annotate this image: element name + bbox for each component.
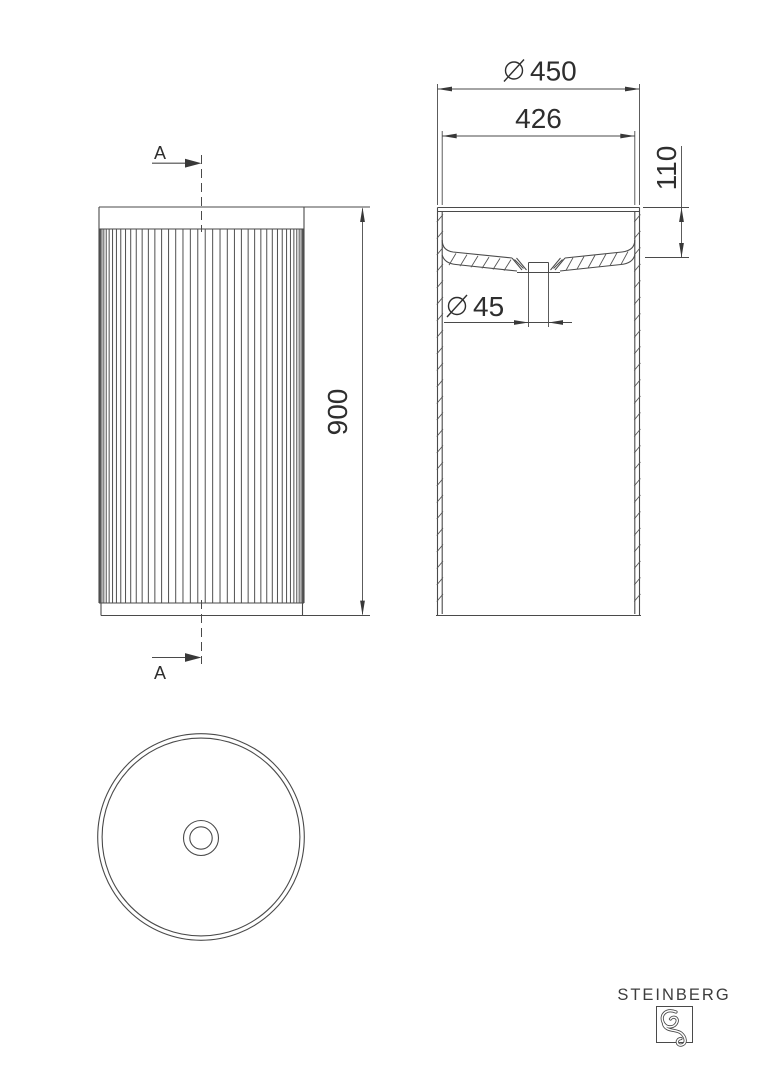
logo-text: STEINBERG: [617, 986, 730, 1004]
dim-900-arrow-bottom: [360, 601, 365, 616]
logo-mark-icon: [662, 1011, 685, 1045]
dim-110-arrow-top: [679, 208, 684, 223]
dim-45-arrow-right: [549, 320, 564, 325]
top-view: [98, 734, 305, 941]
dim-110-text: 110: [651, 146, 682, 191]
dim-450-arrow-left: [438, 87, 453, 92]
drain-inner-circle: [190, 827, 212, 849]
drain-outer-circle: [184, 821, 219, 856]
section-arrow-icon-bottom: [185, 653, 202, 662]
dimension-900: 900: [322, 207, 365, 615]
dim-900-text: 900: [322, 389, 353, 436]
basin-interior-left: [442, 240, 512, 258]
flute-lines: [100, 230, 303, 603]
top-view-outer-rim: [98, 734, 305, 941]
dimension-110: 110: [643, 146, 689, 258]
diameter-symbol-icon: [447, 295, 467, 317]
dim-450-arrow-right: [625, 87, 640, 92]
brand-logo: STEINBERG: [617, 986, 730, 1045]
section-cut-marks: A A: [152, 143, 202, 683]
section-arrow-icon-top: [185, 159, 202, 168]
dim-45-text: 45: [473, 291, 504, 322]
basin-interior-right: [565, 240, 635, 258]
dim-900-arrow-top: [360, 207, 365, 222]
washbasin-technical-drawing: A A 900: [0, 0, 764, 1080]
dim-426-text: 426: [515, 103, 562, 134]
drain-detail: [512, 258, 565, 327]
section-label-top: A: [154, 143, 166, 163]
dim-426-arrow-right: [620, 134, 635, 139]
dim-450-text: 450: [530, 56, 577, 87]
section-label-bottom: A: [154, 663, 166, 683]
dim-110-arrow-bottom: [679, 243, 684, 258]
diameter-symbol-icon: [504, 60, 524, 82]
top-view-inner-rim: [102, 738, 300, 936]
dimension-426: 426: [442, 103, 635, 205]
section-view: [436, 208, 641, 616]
dim-426-arrow-left: [442, 134, 457, 139]
dim-45-arrow-left: [514, 320, 529, 325]
dimension-45: 45: [444, 291, 572, 325]
technical-drawing-page: A A 900: [0, 0, 764, 1080]
